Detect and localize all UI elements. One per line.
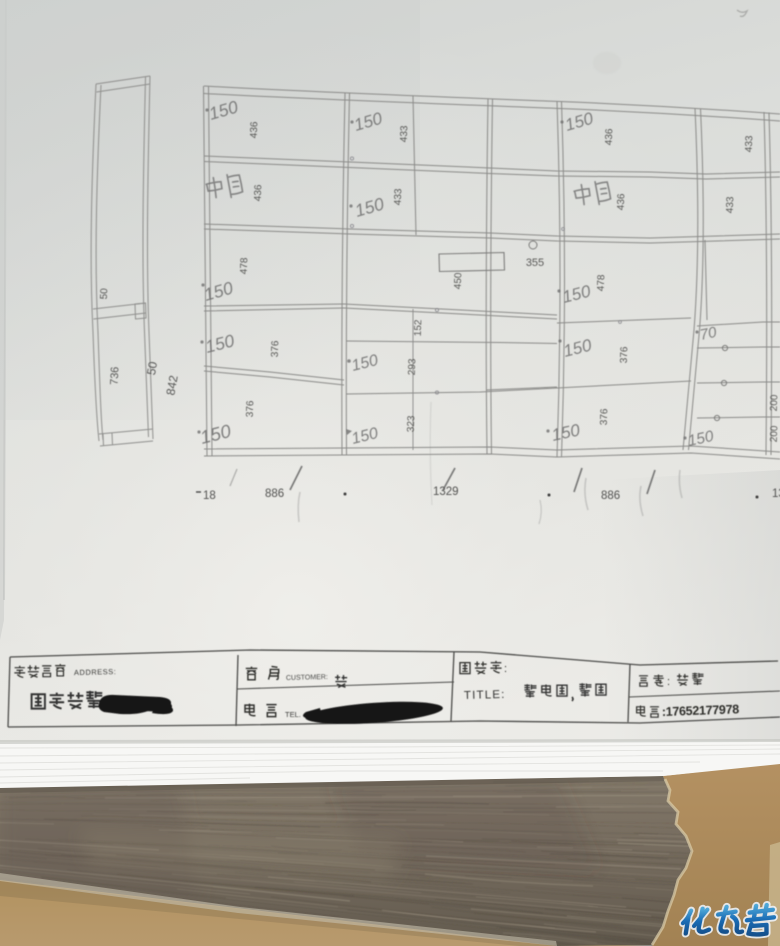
svg-text::17652177978: :17652177978: [662, 702, 740, 719]
svg-text:50: 50: [99, 288, 111, 300]
svg-text::: :: [667, 676, 670, 688]
svg-text:TITLE:: TITLE:: [464, 689, 506, 702]
svg-text:355: 355: [526, 257, 544, 269]
svg-text:433: 433: [399, 125, 411, 142]
svg-text:50: 50: [144, 360, 160, 376]
svg-text:436: 436: [604, 128, 616, 145]
svg-text:TEL.: TEL.: [285, 710, 301, 719]
svg-text:200: 200: [769, 394, 780, 411]
svg-text:13: 13: [772, 488, 780, 500]
svg-text:1329: 1329: [433, 486, 459, 498]
svg-text:433: 433: [725, 196, 737, 213]
svg-text:323: 323: [406, 415, 418, 432]
svg-text:436: 436: [253, 184, 265, 201]
svg-text:886: 886: [265, 488, 284, 500]
svg-text:CUSTOMER:: CUSTOMER:: [286, 674, 328, 682]
svg-text:478: 478: [239, 257, 251, 274]
svg-text::: :: [504, 663, 507, 675]
svg-text:436: 436: [616, 193, 628, 210]
svg-text:433: 433: [744, 135, 756, 152]
svg-text:478: 478: [596, 274, 608, 291]
svg-text:886: 886: [601, 490, 620, 502]
svg-text:450: 450: [453, 272, 465, 289]
svg-text:376: 376: [245, 400, 257, 417]
svg-text:293: 293: [407, 358, 419, 375]
svg-text:376: 376: [619, 346, 631, 363]
svg-text:436: 436: [249, 121, 261, 138]
svg-text:ADDRESS:: ADDRESS:: [74, 667, 117, 677]
svg-text:200: 200: [769, 425, 780, 442]
svg-text:376: 376: [599, 408, 611, 425]
svg-text:152: 152: [413, 319, 425, 336]
svg-text:18: 18: [203, 490, 216, 502]
svg-text:736: 736: [109, 366, 122, 385]
svg-text:376: 376: [270, 340, 282, 357]
svg-text:433: 433: [393, 188, 405, 205]
